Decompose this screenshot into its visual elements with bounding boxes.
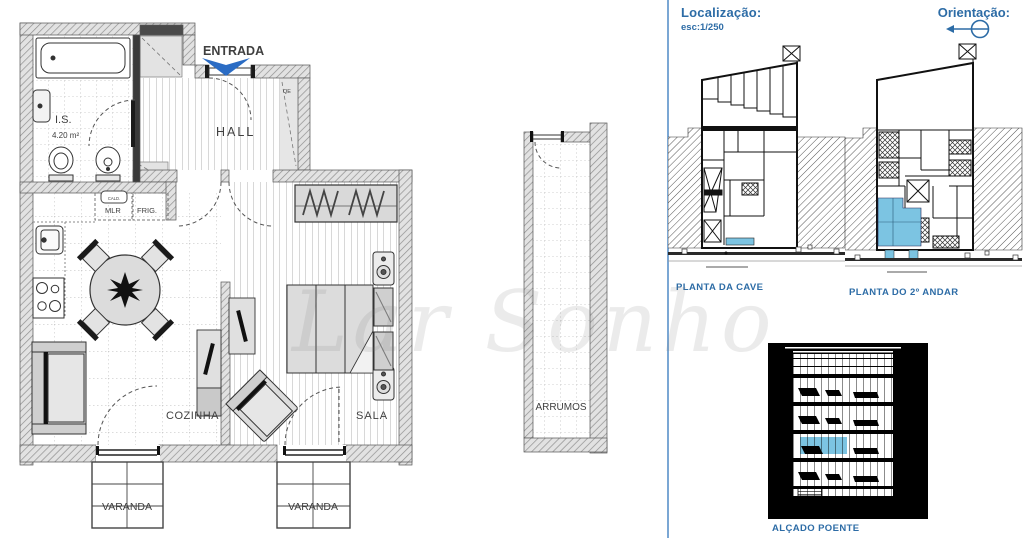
basement-plan-label: PLANTA DA CAVE [676, 282, 763, 293]
storage-floor [533, 142, 590, 438]
basement-site-plan [668, 40, 848, 275]
fridge-label: FRIG. [137, 206, 157, 215]
scale-label: esc:1/250 [681, 22, 724, 33]
balconies [92, 462, 350, 528]
entrance-label: ENTRADA [203, 44, 264, 58]
apartment-floor-plan: ENTRADA HALL I.S. 4.20 m² QE CALD. MLR F… [0, 0, 668, 538]
bidet [96, 147, 120, 181]
west-elevation-label: ALÇADO POENTE [772, 523, 860, 534]
ground-hatch [668, 128, 702, 248]
second-floor-plan-label: PLANTA DO 2º ANDAR [849, 287, 959, 298]
speaker [373, 367, 394, 400]
stove [33, 278, 64, 318]
storage-label: ARRUMOS [535, 402, 586, 413]
bathroom-door [131, 100, 135, 147]
toilet [49, 147, 73, 181]
washer-label: MLR [105, 206, 121, 215]
second-floor-site-plan [845, 40, 1024, 275]
location-label: Localização: [681, 5, 761, 20]
west-elevation-drawing [765, 338, 935, 528]
street-line [845, 251, 1022, 273]
boiler-label: CALD. [108, 196, 120, 201]
hall-label: HALL [216, 125, 255, 139]
bathroom-area-label: 4.20 m² [52, 131, 79, 140]
slab-line [702, 126, 797, 131]
kitchen-label: COZINHA [166, 410, 219, 422]
screenshot-root: ENTRADA HALL I.S. 4.20 m² QE CALD. MLR F… [0, 0, 1024, 538]
ground-hatch [797, 137, 845, 248]
speaker [373, 252, 394, 285]
floors [33, 35, 590, 445]
sofa [32, 342, 86, 434]
highlight-pool [726, 238, 754, 245]
hall-floor [140, 78, 281, 170]
flag-marker-icon [783, 46, 800, 63]
bathroom-label: I.S. [55, 114, 72, 126]
ground-hatch [845, 128, 877, 250]
garage-door [798, 488, 822, 496]
bathtub [36, 38, 130, 78]
kitchen-sink [36, 226, 63, 254]
wardrobe [295, 185, 397, 222]
ground-hatch [973, 128, 1022, 250]
street-name-text [706, 266, 748, 268]
balcony-kitchen [92, 462, 163, 528]
balcony-living-label: VARANDA [288, 501, 338, 513]
electrical-box-label: QE [283, 89, 291, 95]
living-room-label: SALA [356, 410, 388, 422]
balcony-kitchen-label: VARANDA [102, 501, 152, 513]
balcony-living [277, 462, 350, 528]
flag-marker-icon [959, 44, 976, 63]
street-name-text [887, 271, 927, 273]
